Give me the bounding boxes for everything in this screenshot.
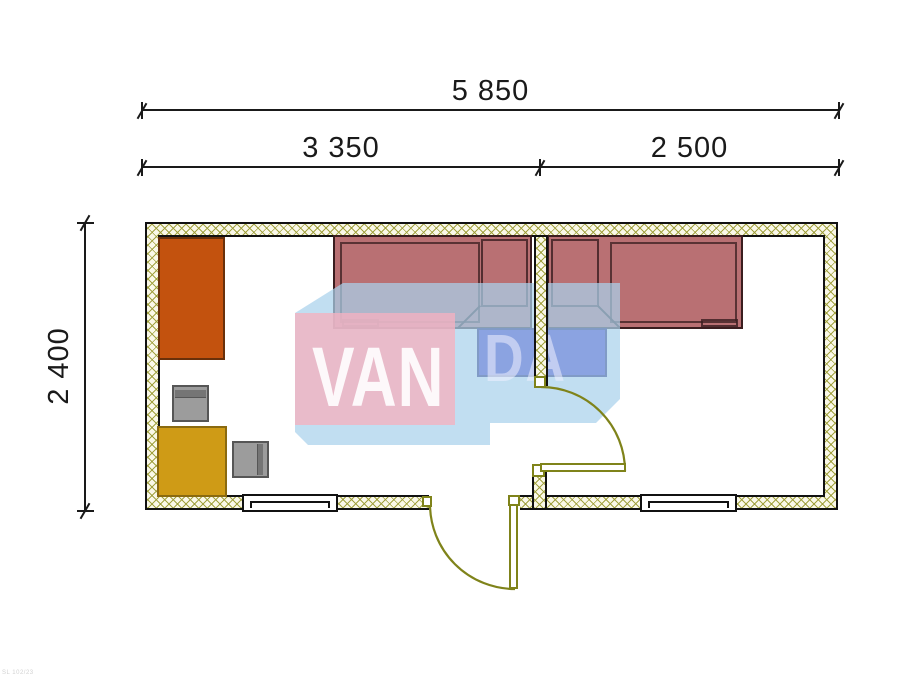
interior-door-leaf xyxy=(540,463,626,472)
dim-tick xyxy=(529,157,551,179)
dim-tick xyxy=(828,100,850,122)
bed-foot-mark xyxy=(701,319,738,327)
dim-line-overall xyxy=(142,109,839,111)
dim-tick xyxy=(74,212,96,234)
chair-2 xyxy=(232,441,269,478)
dim-line-depth xyxy=(84,222,86,510)
window-pane xyxy=(251,501,329,503)
table xyxy=(157,426,227,497)
window-post xyxy=(727,501,729,508)
window-post xyxy=(328,501,330,508)
dim-right-room-width: 2 500 xyxy=(540,134,839,163)
chair-backrest xyxy=(175,390,206,398)
watermark-text-van: VAN xyxy=(312,335,444,419)
watermark-text-da: DA xyxy=(484,325,567,392)
dim-overall-width: 5 850 xyxy=(142,77,839,106)
interior-door-jamb xyxy=(534,376,546,388)
bed-blanket xyxy=(610,242,737,323)
entrance-door-arc xyxy=(430,504,515,589)
window-post xyxy=(648,501,650,508)
chair-backrest xyxy=(257,444,263,475)
drawing-stamp: SL 102/23 xyxy=(2,670,34,676)
dim-line-rooms xyxy=(142,166,839,168)
entrance-opening xyxy=(429,495,520,512)
dim-tick xyxy=(74,500,96,522)
window-pane xyxy=(649,501,728,503)
floor-plan-canvas: 5 850 3 350 2 500 2 400 VAN DA xyxy=(0,0,924,700)
dim-left-room-width: 3 350 xyxy=(142,134,540,163)
dim-tick xyxy=(131,157,153,179)
dim-depth: 2 400 xyxy=(45,222,77,510)
entrance-door-jamb xyxy=(422,496,432,507)
chair-1 xyxy=(172,385,209,422)
dim-tick xyxy=(828,157,850,179)
window-post xyxy=(250,501,252,508)
wardrobe xyxy=(158,237,225,360)
window-right xyxy=(640,494,737,512)
entrance-door-leaf xyxy=(509,504,518,589)
dim-tick xyxy=(131,100,153,122)
window-left xyxy=(242,494,338,512)
partition-wall xyxy=(534,235,548,386)
